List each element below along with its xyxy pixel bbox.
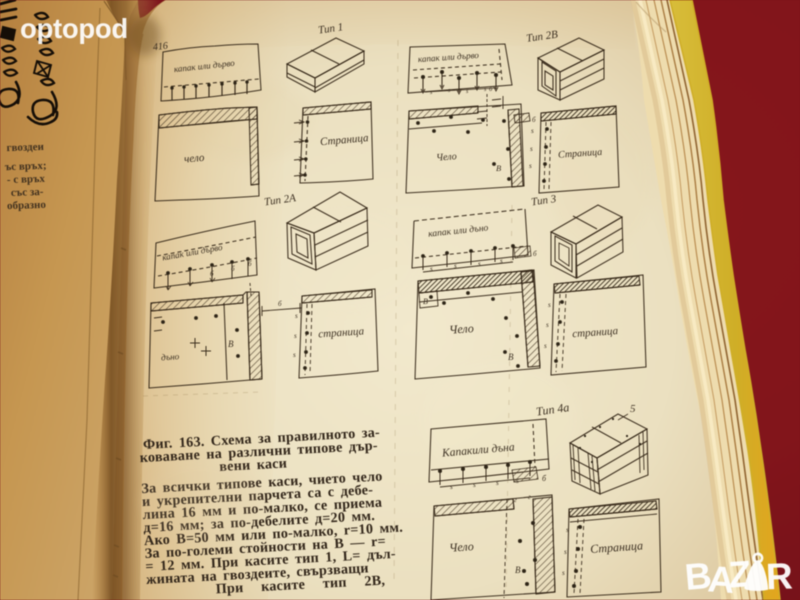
svg-text:5: 5: [630, 403, 636, 415]
svg-text:б: б: [231, 265, 235, 273]
svg-text:s: s: [531, 127, 534, 135]
svg-text:В: В: [228, 339, 234, 349]
svg-text:s: s: [496, 479, 499, 487]
svg-text:s: s: [295, 312, 298, 320]
svg-text:s: s: [564, 548, 567, 556]
svg-text:optopod: optopod: [20, 13, 128, 44]
svg-text:s: s: [546, 321, 549, 329]
svg-text:s: s: [530, 145, 533, 153]
svg-text:s: s: [566, 526, 569, 534]
svg-text:чело: чело: [184, 152, 206, 166]
svg-text:ъс връх;: ъс връх;: [5, 160, 47, 173]
svg-text:б: б: [210, 270, 214, 278]
svg-text:s: s: [478, 260, 481, 268]
svg-text:В: В: [423, 297, 428, 306]
svg-text:s: s: [529, 162, 532, 170]
svg-text:s: s: [430, 265, 433, 273]
svg-text:Чело: Чело: [449, 539, 475, 555]
svg-text:Чело: Чело: [436, 151, 457, 163]
svg-text:s: s: [293, 351, 296, 359]
svg-text:s: s: [544, 342, 547, 350]
svg-text:Чело: Чело: [449, 321, 475, 337]
svg-text:б: б: [532, 116, 536, 124]
svg-text:б: б: [248, 260, 252, 268]
svg-text:г: г: [514, 496, 517, 504]
svg-text:В: В: [496, 163, 501, 173]
svg-text:s: s: [548, 301, 551, 309]
svg-text:s: s: [294, 332, 297, 340]
svg-text:В: В: [515, 565, 521, 575]
svg-text:гвоздеи: гвоздеи: [6, 141, 44, 154]
svg-text:образно: образно: [7, 199, 47, 212]
svg-text:s: s: [473, 481, 476, 489]
svg-text:със за-: със за-: [11, 186, 44, 199]
svg-text:R: R: [765, 555, 793, 597]
svg-text:В: В: [508, 352, 514, 362]
svg-text:s: s: [454, 262, 457, 270]
svg-text:дъно: дъно: [161, 351, 180, 362]
svg-text:s: s: [562, 569, 565, 577]
svg-text:б: б: [533, 250, 537, 258]
svg-text:s: s: [500, 257, 503, 265]
svg-text:s: s: [450, 483, 453, 491]
svg-text:- с връх: - с връх: [7, 173, 46, 186]
svg-text:б: б: [278, 300, 282, 308]
svg-text:г: г: [528, 493, 531, 501]
